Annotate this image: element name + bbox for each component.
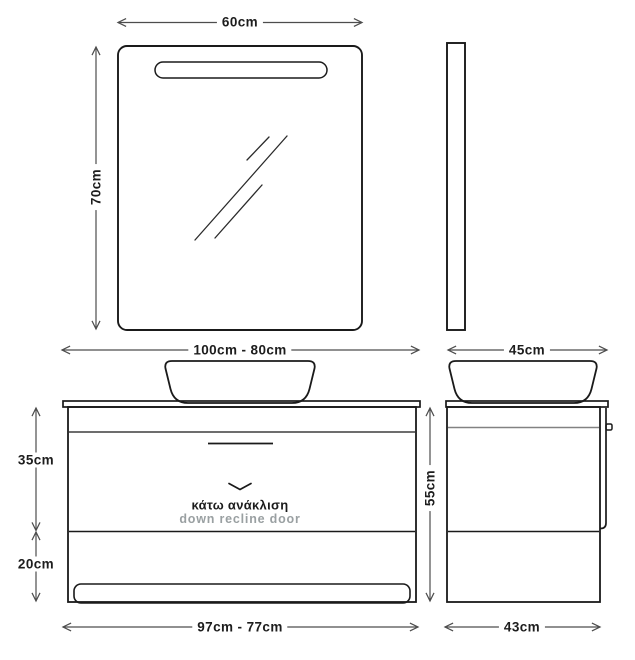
cabinet-front-kick-panel	[74, 584, 410, 603]
dim-label-total-height: 55cm	[423, 465, 438, 511]
mirror-side-panel	[447, 43, 465, 330]
diagram-line-art	[0, 0, 635, 660]
mirror-outline	[118, 46, 362, 330]
vanity-front-view	[63, 361, 420, 603]
chevron-down-icon	[229, 484, 251, 490]
dim-label-cabinet-bottom-width: 97cm - 77cm	[192, 620, 287, 635]
mirror-side-view	[447, 43, 465, 330]
vanity-side-view	[446, 361, 612, 602]
basin-front	[165, 361, 314, 403]
basin-side	[449, 361, 596, 403]
dim-label-depth-bottom: 43cm	[499, 620, 545, 635]
door-note-greek: κάτω ανάκλιση	[192, 497, 289, 512]
mirror-front-view	[118, 46, 362, 330]
door-note-english: down recline door	[179, 512, 300, 526]
dim-label-upper-section: 35cm	[13, 453, 59, 468]
dimension-arrows	[36, 23, 607, 628]
cabinet-side-handle	[606, 424, 612, 430]
dim-label-depth-top: 45cm	[504, 343, 550, 358]
dim-label-lower-section: 20cm	[13, 557, 59, 572]
cabinet-side-body	[447, 407, 600, 602]
dim-label-mirror-height: 70cm	[89, 164, 104, 210]
dim-label-mirror-width: 60cm	[217, 15, 263, 30]
technical-drawing-canvas: 60cm 70cm 100cm - 80cm 45cm 35cm 20cm 55…	[0, 0, 635, 660]
cabinet-side-door-edge	[601, 408, 607, 529]
mirror-reflection-lines	[195, 136, 287, 240]
mirror-light-slot	[155, 62, 327, 78]
dim-label-cabinet-top-width: 100cm - 80cm	[188, 343, 291, 358]
